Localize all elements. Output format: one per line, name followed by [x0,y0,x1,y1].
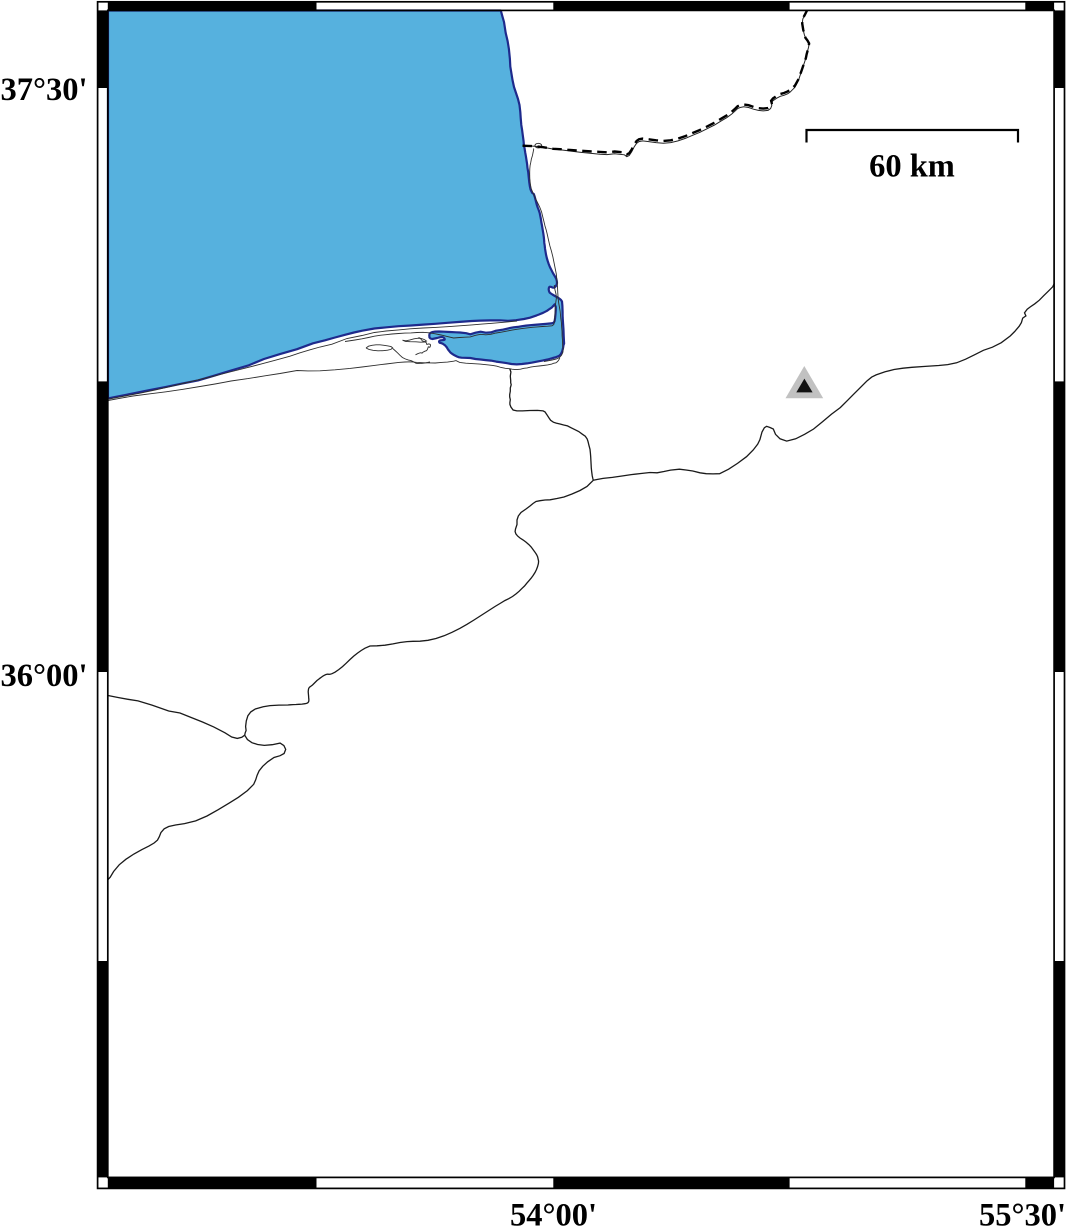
svg-text:37°30': 37°30' [0,72,87,108]
svg-text:36°00': 36°00' [0,658,87,694]
svg-text:54°00': 54°00' [510,1197,597,1226]
svg-text:60 km: 60 km [869,148,955,184]
svg-text:55°30': 55°30' [979,1197,1066,1226]
